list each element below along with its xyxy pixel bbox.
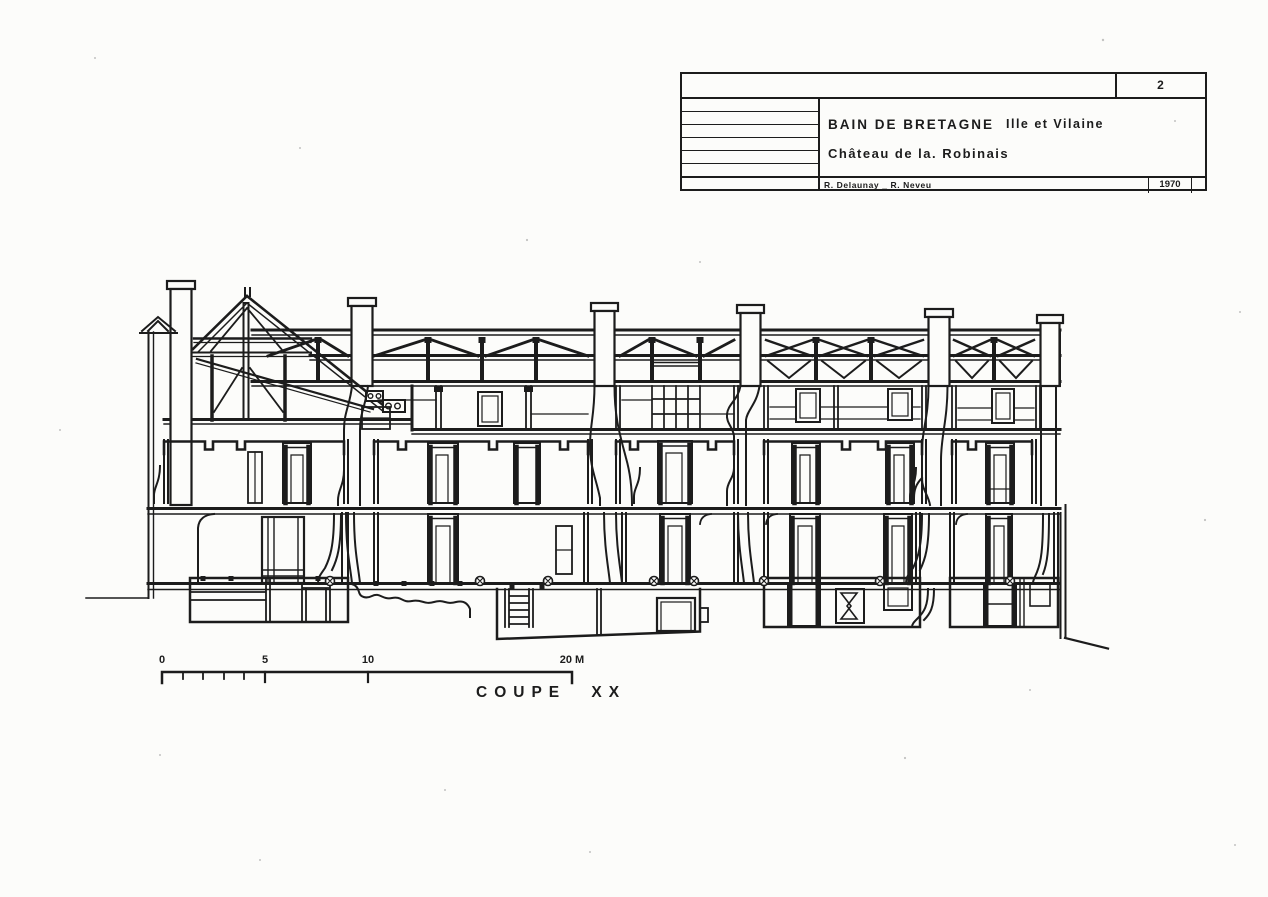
ground-line xyxy=(1065,638,1108,649)
scale-label-5: 5 xyxy=(245,654,285,666)
second-floor xyxy=(154,440,1036,503)
basement-level xyxy=(190,576,1108,649)
roof-trusses xyxy=(268,337,1034,381)
section-drawing xyxy=(0,0,1268,897)
scale-label-0: 0 xyxy=(142,654,182,666)
drawing-caption: COUPE XX xyxy=(476,684,626,702)
attic-level xyxy=(378,386,1040,430)
scale-bar-ticks xyxy=(162,672,572,683)
drawing-sheet: { "title_block": { "sheet_number": "2", … xyxy=(0,0,1268,897)
scale-label-20m: 20 M xyxy=(550,654,594,666)
scale-label-10: 10 xyxy=(348,654,388,666)
pavilion-roof xyxy=(193,288,412,430)
first-floor xyxy=(198,513,1058,583)
